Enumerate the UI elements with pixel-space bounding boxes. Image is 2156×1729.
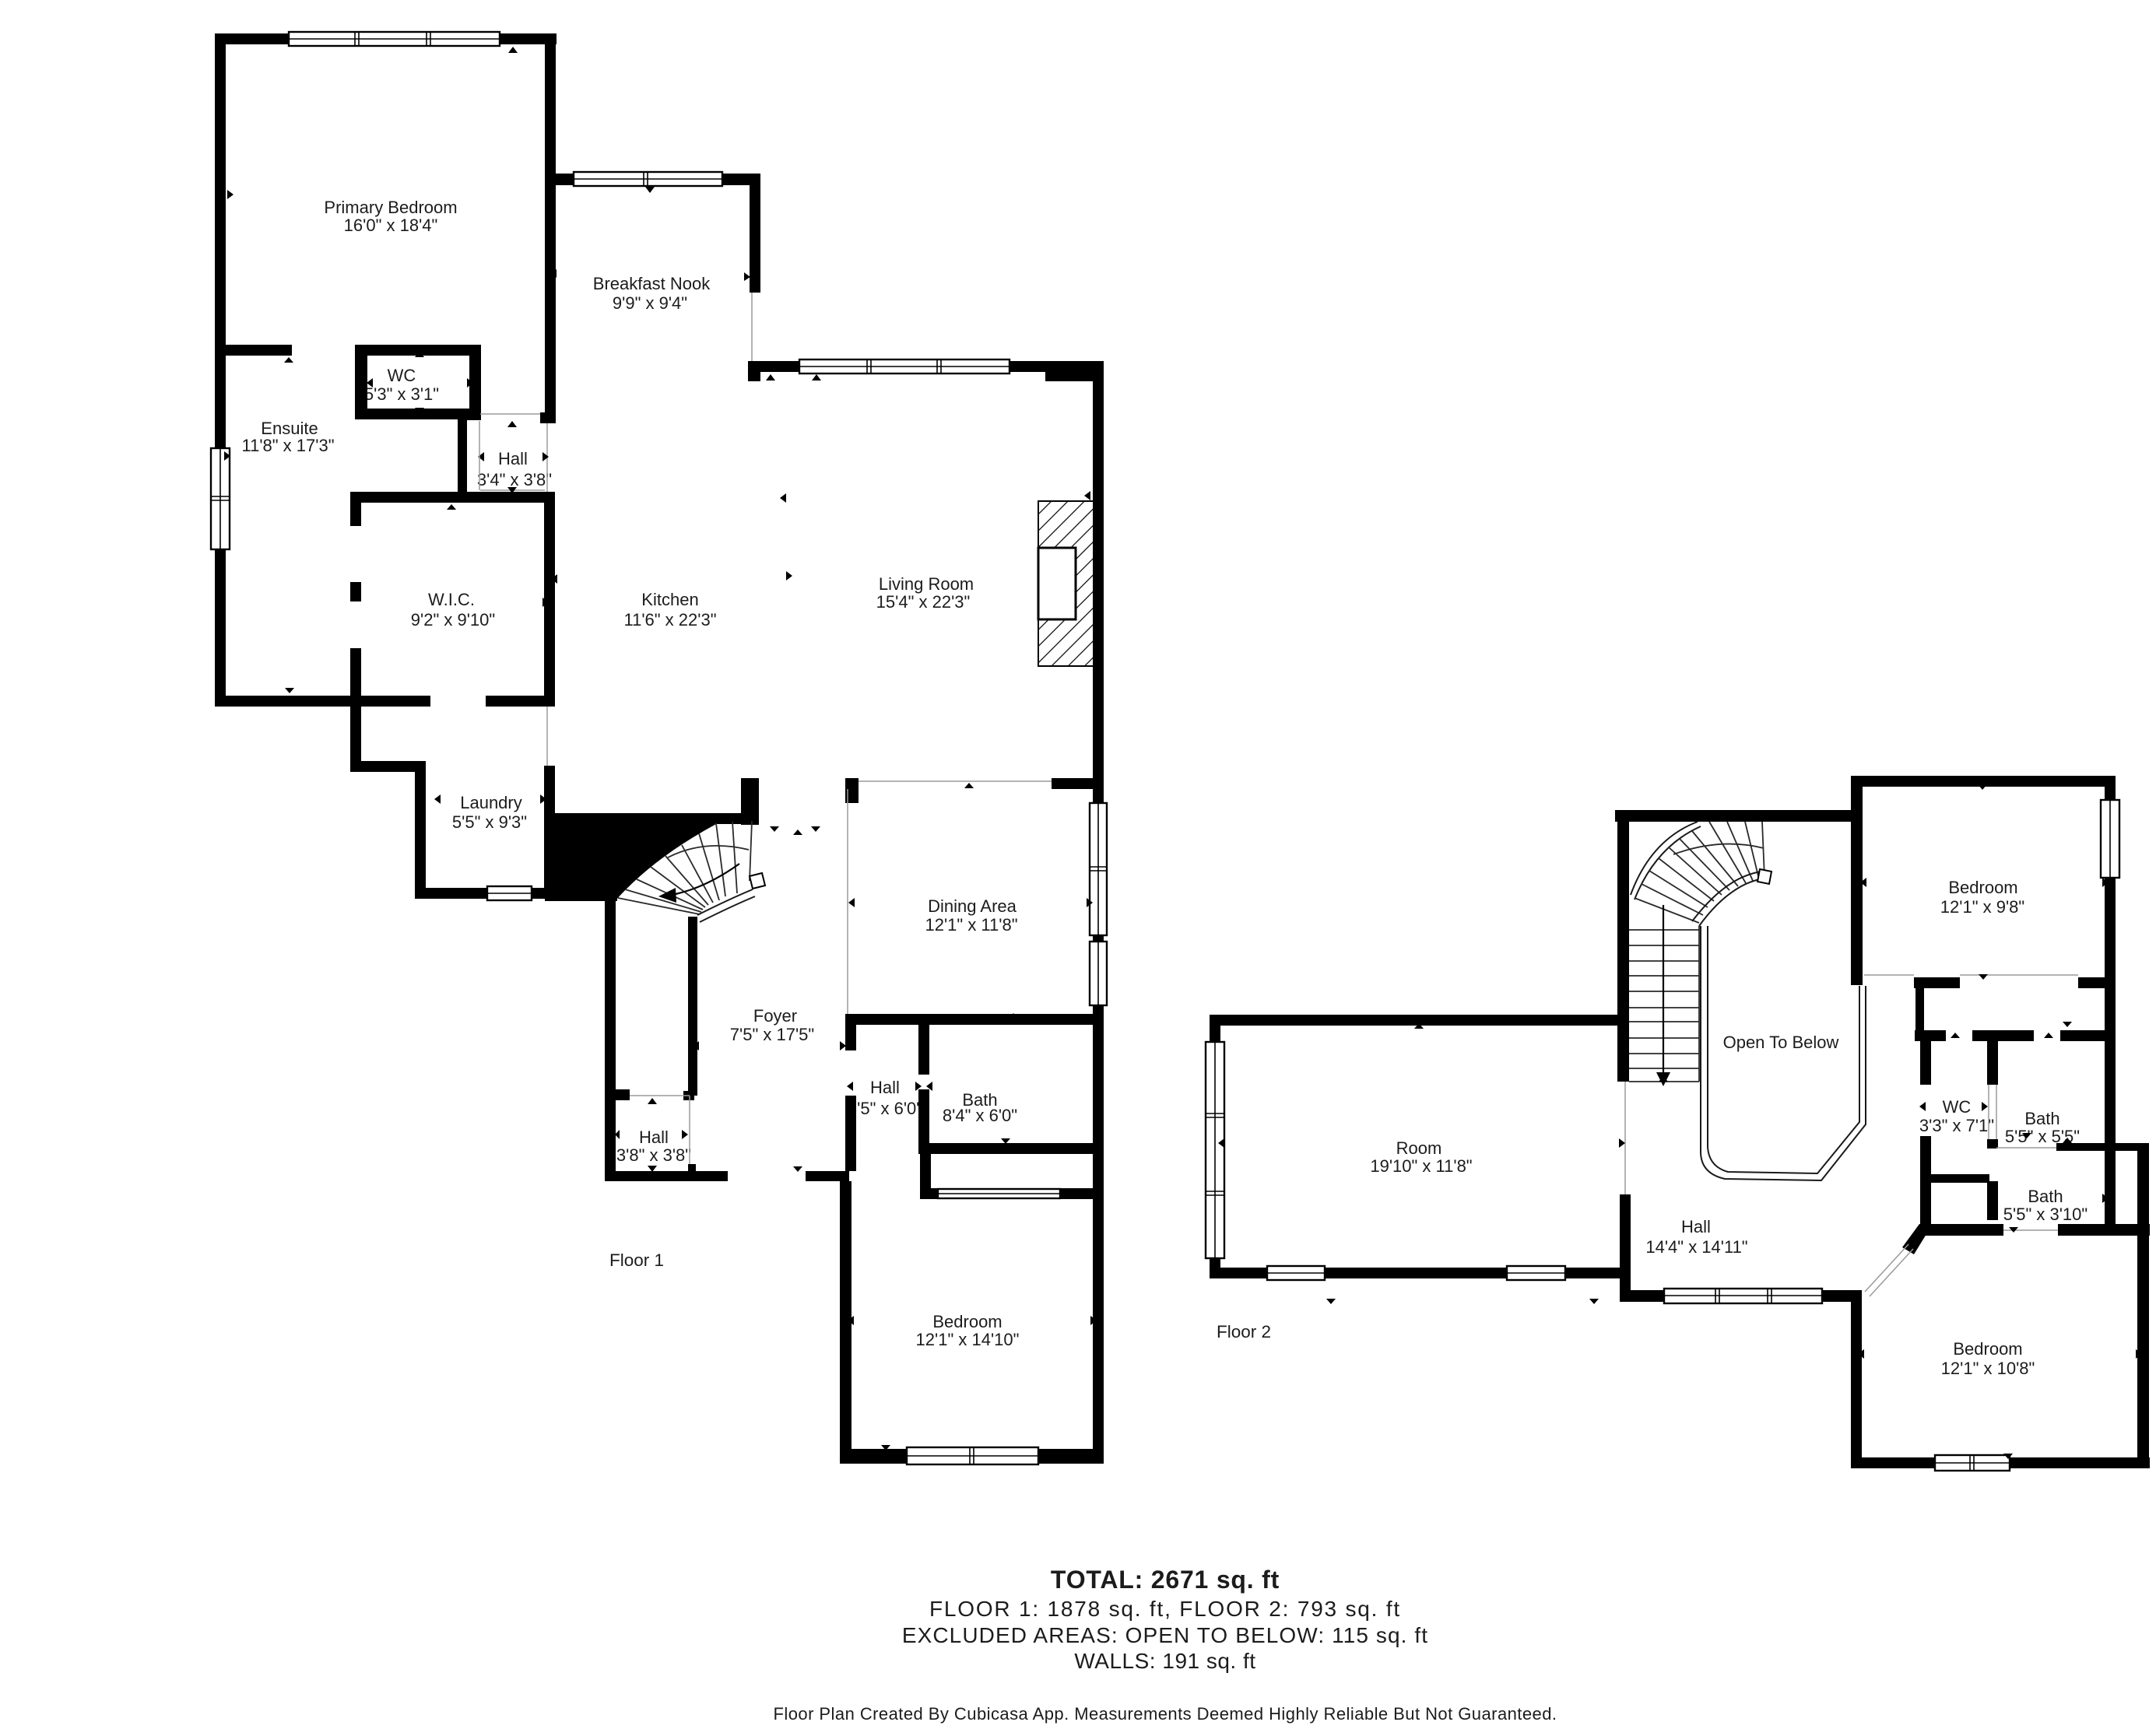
svg-text:Open To Below: Open To Below [1723, 1033, 1839, 1052]
svg-text:5'5" x 9'3": 5'5" x 9'3" [452, 812, 527, 832]
svg-text:Primary Bedroom: Primary Bedroom [324, 198, 457, 217]
svg-text:15'4" x 22'3": 15'4" x 22'3" [876, 592, 971, 612]
svg-text:5'3" x 3'1": 5'3" x 3'1" [364, 384, 439, 404]
svg-text:Floor 1: Floor 1 [609, 1250, 664, 1270]
svg-text:Living Room: Living Room [879, 574, 974, 594]
svg-text:WC: WC [388, 366, 416, 385]
svg-text:Bath: Bath [2028, 1187, 2063, 1206]
svg-text:3'5" x 6'0": 3'5" x 6'0" [848, 1099, 922, 1118]
svg-text:7'5" x 17'5": 7'5" x 17'5" [730, 1025, 814, 1044]
svg-text:3'8" x 3'8": 3'8" x 3'8" [616, 1145, 691, 1165]
svg-text:9'2" x 9'10": 9'2" x 9'10" [411, 610, 495, 630]
svg-text:TOTAL: 2671 sq. ft: TOTAL: 2671 sq. ft [1051, 1566, 1280, 1594]
svg-text:Laundry: Laundry [460, 793, 522, 812]
svg-text:Dining Area: Dining Area [928, 896, 1017, 916]
svg-text:Foyer: Foyer [753, 1006, 797, 1026]
svg-text:Bath: Bath [2024, 1109, 2059, 1128]
svg-text:12'1" x 10'8": 12'1" x 10'8" [1941, 1359, 2035, 1378]
svg-text:11'6" x 22'3": 11'6" x 22'3" [623, 610, 716, 630]
svg-text:Floor Plan Created By Cubicasa: Floor Plan Created By Cubicasa App. Meas… [773, 1704, 1557, 1724]
svg-text:Hall: Hall [1681, 1217, 1711, 1236]
svg-text:11'8" x 17'3": 11'8" x 17'3" [241, 436, 334, 455]
svg-text:Hall: Hall [639, 1128, 669, 1147]
svg-text:Breakfast Nook: Breakfast Nook [593, 274, 711, 293]
svg-text:WALLS: 191 sq. ft: WALLS: 191 sq. ft [1074, 1649, 1255, 1673]
svg-text:Bedroom: Bedroom [932, 1312, 1002, 1331]
svg-text:W.I.C.: W.I.C. [428, 590, 475, 609]
svg-text:12'1" x 14'10": 12'1" x 14'10" [916, 1330, 1020, 1349]
svg-text:19'10" x 11'8": 19'10" x 11'8" [1370, 1156, 1472, 1176]
svg-text:16'0" x 18'4": 16'0" x 18'4" [344, 216, 438, 235]
svg-text:14'4" x 14'11": 14'4" x 14'11" [1645, 1237, 1747, 1257]
svg-text:Bedroom: Bedroom [1948, 878, 2017, 897]
svg-text:Bedroom: Bedroom [1953, 1339, 2022, 1359]
svg-text:Room: Room [1396, 1138, 1442, 1158]
svg-text:Kitchen: Kitchen [641, 590, 698, 609]
svg-text:12'1" x 9'8": 12'1" x 9'8" [1940, 897, 2024, 917]
svg-text:Hall: Hall [870, 1078, 900, 1097]
svg-text:FLOOR 1: 1878 sq. ft, FLOOR 2:: FLOOR 1: 1878 sq. ft, FLOOR 2: 793 sq. f… [929, 1597, 1401, 1621]
svg-text:3'3" x 7'1": 3'3" x 7'1" [1919, 1116, 1994, 1135]
svg-text:Floor 2: Floor 2 [1217, 1322, 1271, 1341]
svg-text:WC: WC [1943, 1097, 1972, 1117]
svg-text:5'5" x 3'10": 5'5" x 3'10" [2003, 1205, 2088, 1224]
svg-text:EXCLUDED AREAS: OPEN TO BELOW:: EXCLUDED AREAS: OPEN TO BELOW: 115 sq. f… [902, 1623, 1428, 1647]
svg-text:Hall: Hall [498, 449, 528, 468]
svg-text:9'9" x 9'4": 9'9" x 9'4" [613, 293, 687, 313]
svg-text:8'4" x 6'0": 8'4" x 6'0" [943, 1106, 1017, 1125]
svg-text:3'4" x 3'8": 3'4" x 3'8" [477, 470, 552, 489]
svg-text:12'1" x 11'8": 12'1" x 11'8" [925, 915, 1017, 935]
